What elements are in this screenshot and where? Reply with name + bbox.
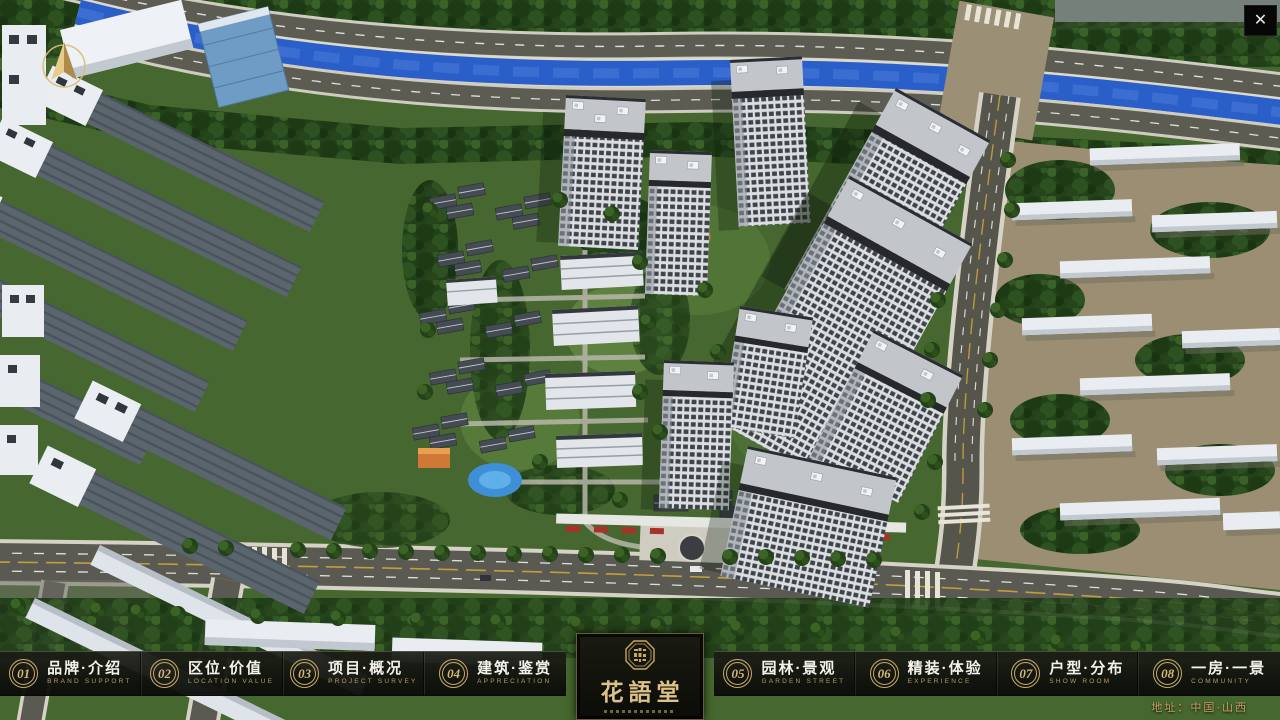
nav-caption: EXPERIENCE <box>908 679 983 686</box>
project-title: 花語堂 <box>596 673 685 707</box>
nav-number-badge: 08 <box>1153 659 1182 688</box>
nav-number-badge: 02 <box>150 659 179 688</box>
nav-item-room-view[interactable]: 08 一房·一景COMMUNITY <box>1138 652 1280 695</box>
nav-label: 区位·价值 <box>188 661 274 676</box>
nav-caption: PROJECT SURVEY <box>328 679 417 686</box>
nav-caption: APPRECIATION <box>477 679 552 686</box>
project-address: 地址：中国·山西 <box>1151 699 1248 715</box>
nav-number-badge: 06 <box>870 659 899 688</box>
nav-item-architecture[interactable]: 04 建筑·鉴赏APPRECIATION <box>424 652 566 695</box>
nav-number-badge: 03 <box>290 659 319 688</box>
nav-caption: COMMUNITY <box>1191 679 1266 686</box>
nav-caption: BRAND SUPPORT <box>47 679 131 686</box>
seal-emblem-icon <box>625 640 655 670</box>
nav-item-garden-landscape[interactable]: 05 园林·景观GARDEN STREET <box>714 652 855 695</box>
nav-label: 项目·概况 <box>328 661 417 676</box>
nav-item-project-survey[interactable]: 03 项目·概况PROJECT SURVEY <box>283 652 425 695</box>
nav-caption: SHOW ROOM <box>1049 679 1124 686</box>
nav-label: 一房·一景 <box>1191 661 1266 676</box>
nav-label: 精装·体验 <box>908 661 983 676</box>
nav-number-badge: 05 <box>723 659 752 688</box>
nav-caption: GARDEN STREET <box>761 679 845 686</box>
nav-item-floorplan-distribution[interactable]: 07 户型·分布SHOW ROOM <box>997 652 1139 695</box>
bottom-nav-right: 05 园林·景观GARDEN STREET 06 精装·体验EXPERIENCE… <box>714 651 1280 696</box>
nav-number-badge: 01 <box>9 659 38 688</box>
nav-item-interior-experience[interactable]: 06 精装·体验EXPERIENCE <box>855 652 997 695</box>
close-button[interactable]: ✕ <box>1244 5 1277 36</box>
project-tagline-line <box>604 710 676 713</box>
nav-label: 品牌·介绍 <box>47 661 131 676</box>
nav-caption: LOCATION VALUE <box>188 679 274 686</box>
nav-number-badge: 04 <box>439 659 468 688</box>
masterplan-aerial-render <box>0 0 1280 720</box>
nav-label: 户型·分布 <box>1049 661 1124 676</box>
nav-label: 建筑·鉴赏 <box>477 661 552 676</box>
project-logo[interactable]: 花語堂 <box>576 633 704 720</box>
compass-icon <box>34 34 94 96</box>
bottom-nav-left: 01 品牌·介绍BRAND SUPPORT 02 区位·价值LOCATION V… <box>0 651 566 696</box>
nav-item-brand-intro[interactable]: 01 品牌·介绍BRAND SUPPORT <box>0 652 141 695</box>
nav-number-badge: 07 <box>1011 659 1040 688</box>
presentation-window: ✕ 01 品牌·介绍BRAND SUPPORT 02 区位·价值LOCATION… <box>0 0 1280 720</box>
nav-item-location-value[interactable]: 02 区位·价值LOCATION VALUE <box>141 652 283 695</box>
nav-label: 园林·景观 <box>761 661 845 676</box>
